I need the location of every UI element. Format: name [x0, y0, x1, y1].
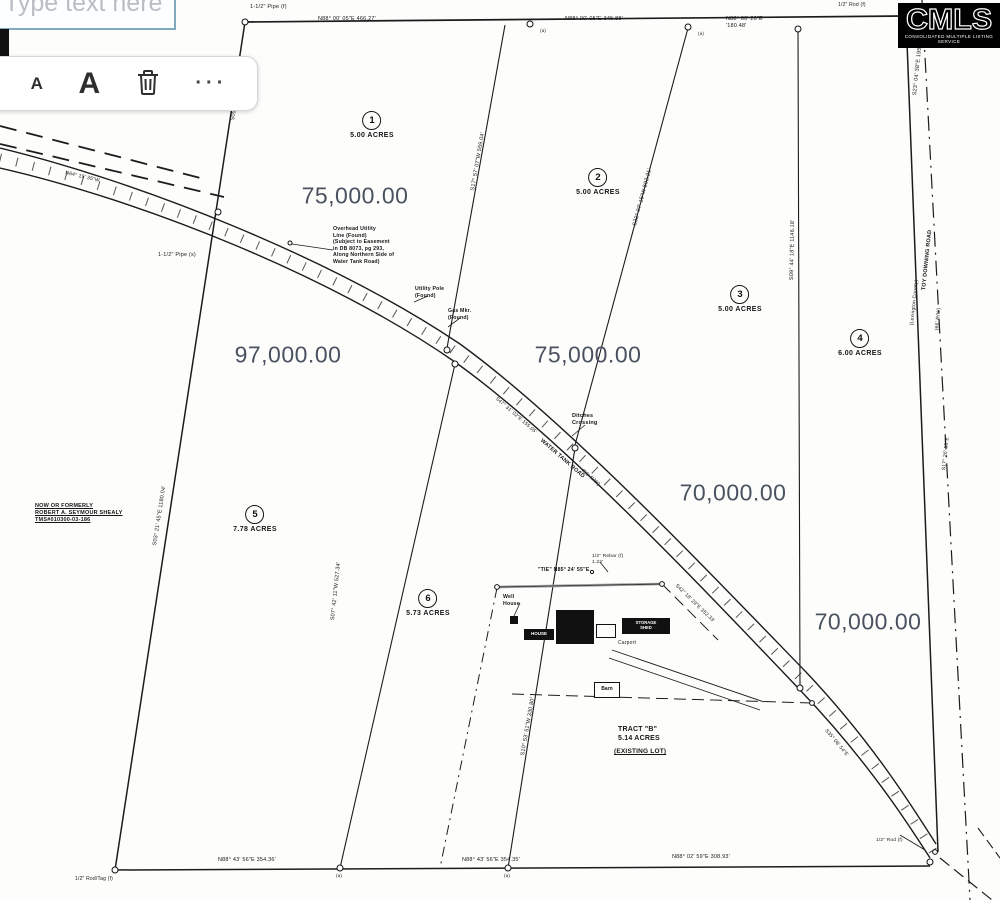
lot-number: 4: [851, 329, 870, 348]
map-label: S07° 42' 11"W 527.34': [330, 562, 343, 621]
map-label: 1-1/2" Pipe (s): [158, 252, 196, 259]
map-label: 1/2" Rebar (f) 1.22': [592, 554, 623, 566]
structure: [596, 624, 616, 638]
lot-marker: 25.00 ACRES: [576, 168, 620, 196]
structure: HOUSE: [524, 629, 554, 640]
map-label: NOW OR FORMERLY ROBERT A. SEYMOUR SHEALY…: [35, 503, 123, 524]
decrease-font-button[interactable]: A: [25, 72, 49, 96]
map-label: N88° 00' 05"E 466.27': [318, 16, 376, 23]
lot-marker: 65.73 ACRES: [406, 589, 450, 617]
map-label: Carport: [618, 640, 636, 646]
map-label: (a): [504, 873, 510, 879]
map-label: S32° 07' 15"W 502.21': [632, 168, 654, 227]
map-label: (EXISTING LOT): [614, 748, 666, 756]
cmls-logo-text: CMLS: [906, 7, 992, 33]
lot-number: 5: [246, 505, 265, 524]
map-label: 1/2" Rod/Tag (f): [75, 876, 113, 882]
price-label: 70,000.00: [815, 609, 922, 636]
map-label: S35° 08' 54"E: [823, 728, 849, 758]
map-label: WATER TANK ROAD: [538, 438, 585, 480]
map-label: Utility Pole (Found): [415, 286, 444, 299]
map-label: (66' R/W): [934, 307, 943, 330]
map-label: (a): [698, 31, 704, 37]
structure: STORAGE SHED: [622, 618, 670, 634]
structure: Barn: [594, 682, 620, 698]
map-label: N88° 43' 56"E 354.36': [218, 857, 276, 864]
map-label: N88° 00' 26"E '180.48': [726, 16, 763, 30]
price-label: 75,000.00: [535, 342, 642, 369]
map-label: N64° 19' 35"W: [65, 170, 101, 184]
annotation-placeholder: Type text here: [4, 0, 162, 16]
lot-acreage: 5.00 ACRES: [718, 306, 762, 313]
increase-font-button[interactable]: A: [73, 65, 107, 103]
annotation-toolbar: A A ···: [0, 56, 258, 111]
annotation-text-input[interactable]: Type text here: [0, 0, 176, 30]
price-label: 97,000.00: [235, 342, 342, 369]
map-label: (Lexington County): [909, 279, 920, 325]
structure-label: Barn: [601, 687, 612, 693]
map-label: S03° 21' 45"E 1180.04': [152, 485, 168, 546]
delete-annotation-button[interactable]: [130, 67, 166, 101]
price-label: 70,000.00: [680, 480, 787, 507]
map-label: 1-1/2" Pipe (f): [250, 4, 287, 11]
plat-document: 1-1/2" Pipe (f)N88° 00' 05"E 466.27'N88°…: [0, 0, 1000, 900]
map-label: Ditches Crossing: [572, 413, 597, 427]
lot-acreage: 5.00 ACRES: [576, 189, 620, 196]
map-label: Overhead Utility Line (Found) (Subject t…: [333, 226, 394, 265]
lot-acreage: 6.00 ACRES: [838, 350, 882, 357]
map-label: S42° 18' 29"E 352.33': [674, 583, 716, 624]
lot-acreage: 7.78 ACRES: [233, 526, 277, 533]
structure: [510, 616, 518, 624]
map-label: S47° 31' 02"E 155.05': [494, 396, 538, 435]
map-label: "TIE" N85° 24' 55"E: [538, 567, 589, 574]
map-label: (a): [540, 28, 546, 34]
map-label: N88° 43' 56"E 354.35': [462, 857, 520, 864]
map-label: Gas Mkr. (Found): [448, 308, 471, 321]
more-options-button[interactable]: ···: [189, 70, 233, 97]
map-label: (a): [336, 873, 342, 879]
lot-acreage: 5.00 ACRES: [350, 132, 394, 139]
cmls-logo: CMLS CONSOLIDATED MULTIPLE LISTING SERVI…: [898, 3, 1000, 48]
lot-marker: 46.00 ACRES: [838, 329, 882, 357]
map-label: TRACT "B" 5.14 ACRES: [618, 726, 660, 744]
lot-number: 1: [363, 111, 382, 130]
lot-acreage: 5.73 ACRES: [406, 610, 450, 617]
lot-number: 2: [589, 168, 608, 187]
trash-icon: [136, 69, 160, 99]
lot-marker: 57.78 ACRES: [233, 505, 277, 533]
map-annotations-layer: 1-1/2" Pipe (f)N88° 00' 05"E 466.27'N88°…: [0, 0, 1000, 900]
lot-number: 6: [419, 589, 438, 608]
structure-label: STORAGE SHED: [636, 621, 657, 630]
map-label: 1/2" Rod (f): [876, 838, 903, 844]
toolbar-edge-fragment: [0, 29, 9, 56]
map-label: S17° 57' 07"W 559.04': [470, 132, 487, 191]
structure-label: HOUSE: [531, 632, 547, 637]
lot-marker: 15.00 ACRES: [350, 111, 394, 139]
price-label: 75,000.00: [302, 183, 409, 210]
map-label: TOY DOWNING ROAD: [921, 230, 934, 291]
map-label: Well House: [503, 594, 520, 607]
map-label: N88° 00' 05"E 345.88': [565, 16, 623, 23]
map-label: 1/2" Rod (f): [838, 2, 866, 8]
map-label: S09° 44' 18"E 1146.18': [789, 220, 797, 281]
map-label: S17° 26' 05"E: [941, 437, 951, 471]
structure: [556, 610, 594, 644]
lot-number: 3: [731, 285, 750, 304]
map-label: S10° 53' 51"W 330.80': [520, 697, 537, 756]
map-label: N88° 02' 59"E 308.93': [672, 854, 730, 861]
lot-marker: 35.00 ACRES: [718, 285, 762, 313]
